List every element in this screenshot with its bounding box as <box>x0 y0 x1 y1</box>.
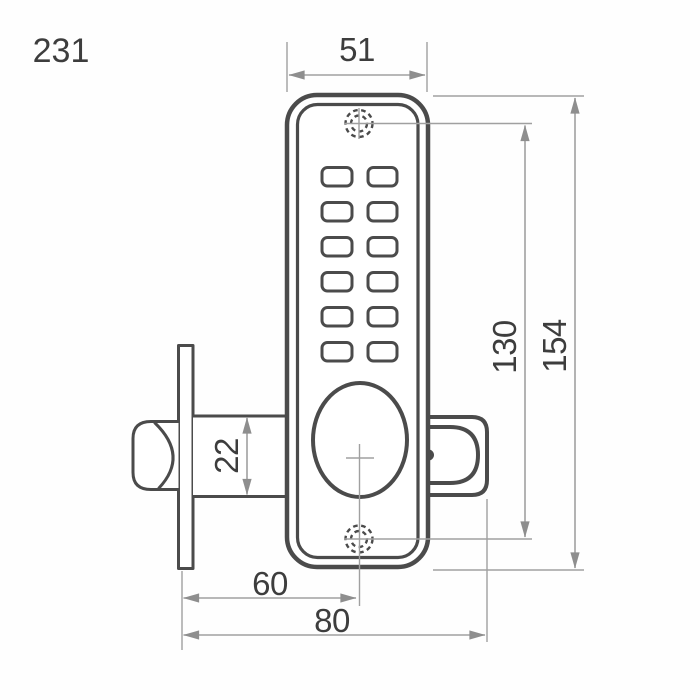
technical-drawing-canvas: 231 51 130 154 22 60 80 <box>0 0 700 700</box>
keypad-button <box>368 273 397 292</box>
rear-knob-inner <box>427 427 478 483</box>
keypad-button <box>322 308 352 327</box>
keypad-button <box>322 343 352 362</box>
keypad-lock-dimensional-drawing: 231 51 130 154 22 60 80 <box>0 0 700 700</box>
keypad-button <box>368 168 397 187</box>
dim-label-80: 80 <box>314 602 350 639</box>
keypad-button <box>368 308 397 327</box>
keypad-button <box>322 168 352 187</box>
dim-label-154: 154 <box>536 319 573 373</box>
keypad-button <box>322 238 352 257</box>
dim-label-130: 130 <box>486 320 523 374</box>
keypad-button <box>368 238 397 257</box>
lock-parts <box>133 95 487 569</box>
dim-label-22: 22 <box>208 438 245 474</box>
rear-knob <box>423 417 487 495</box>
drawing-number-label: 231 <box>33 32 90 70</box>
keypad-button <box>368 203 397 222</box>
keypad-button <box>322 203 352 222</box>
faceplate <box>179 346 194 569</box>
keypad-button <box>368 343 397 362</box>
dim-label-60: 60 <box>252 565 288 602</box>
latch-bolt <box>133 422 179 490</box>
dim-label-51: 51 <box>339 31 375 68</box>
keypad-button <box>322 273 352 292</box>
